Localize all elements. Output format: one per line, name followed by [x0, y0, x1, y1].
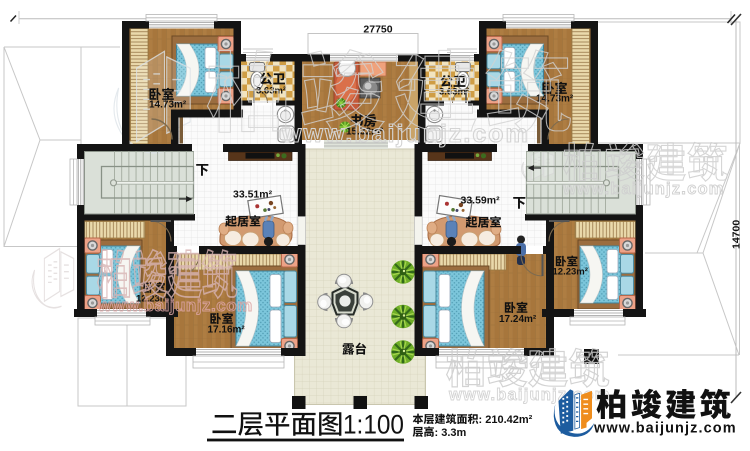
svg-text:33.59m²: 33.59m²	[461, 195, 501, 207]
svg-text:17.16m²: 17.16m²	[208, 325, 246, 336]
svg-text:33.51m²: 33.51m²	[233, 189, 273, 201]
svg-text:www.baijunjz.com: www.baijunjz.com	[97, 296, 253, 315]
svg-text:3.63m²: 3.63m²	[256, 86, 286, 97]
svg-text:1:100: 1:100	[343, 410, 404, 440]
svg-text:14700: 14700	[731, 220, 743, 249]
svg-text:: 3.3m: : 3.3m	[435, 427, 467, 439]
svg-text:12.23m²: 12.23m²	[553, 267, 588, 278]
svg-text:14.73m²: 14.73m²	[149, 100, 187, 111]
svg-text:www.baijunjz.com: www.baijunjz.com	[562, 180, 725, 198]
svg-text:www.baijunjz.com: www.baijunjz.com	[593, 421, 737, 437]
svg-text:: 210.42m²: : 210.42m²	[479, 414, 533, 426]
svg-text:14.73m²: 14.73m²	[536, 94, 574, 105]
svg-text:17.24m²: 17.24m²	[499, 314, 537, 325]
svg-text:www.baijunjz.com: www.baijunjz.com	[281, 120, 530, 148]
